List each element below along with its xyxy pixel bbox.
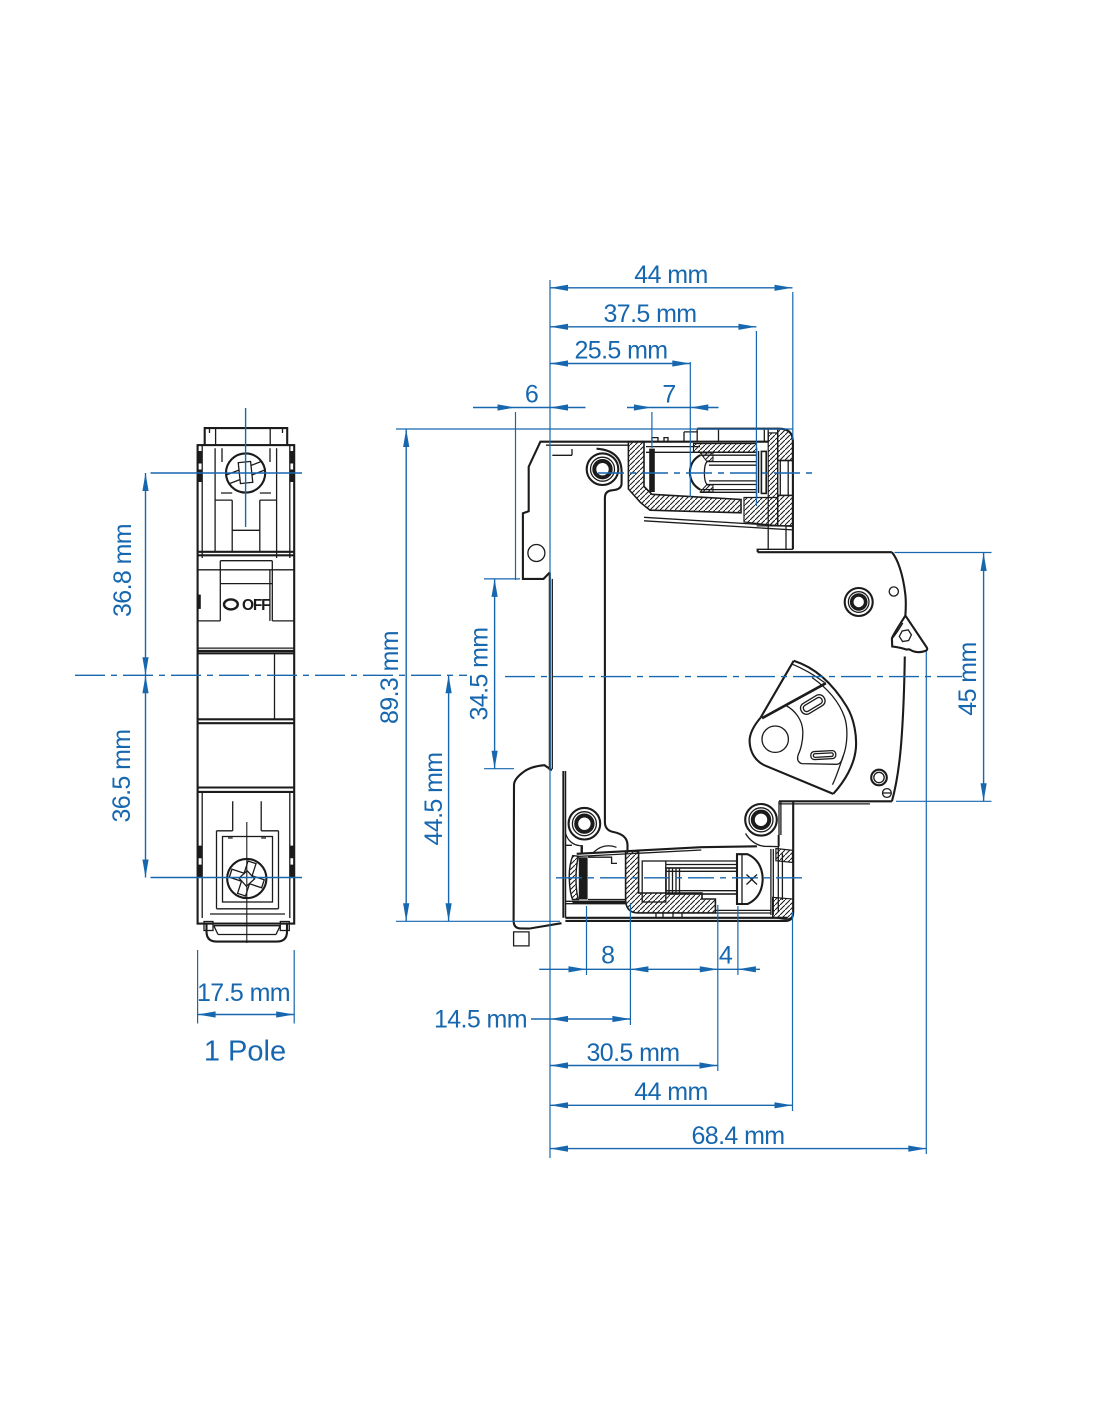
svg-text:37.5 mm: 37.5 mm (603, 300, 696, 328)
svg-text:36.5 mm: 36.5 mm (108, 729, 136, 822)
svg-text:44 mm: 44 mm (634, 1078, 707, 1106)
svg-text:OFF: OFF (242, 597, 270, 614)
svg-text:44 mm: 44 mm (634, 261, 707, 289)
svg-text:34.5 mm: 34.5 mm (466, 627, 494, 720)
svg-text:1 Pole: 1 Pole (204, 1036, 286, 1068)
svg-text:17.5 mm: 17.5 mm (197, 979, 290, 1007)
svg-text:44.5 mm: 44.5 mm (420, 752, 448, 845)
svg-text:36.8 mm: 36.8 mm (109, 524, 137, 617)
svg-text:8: 8 (601, 942, 614, 970)
svg-text:89.3 mm: 89.3 mm (376, 631, 404, 724)
svg-text:25.5 mm: 25.5 mm (574, 337, 667, 365)
svg-text:7: 7 (662, 381, 675, 409)
svg-text:45 mm: 45 mm (954, 642, 982, 715)
svg-text:6: 6 (525, 381, 538, 409)
svg-text:30.5 mm: 30.5 mm (586, 1039, 679, 1067)
svg-text:4: 4 (719, 942, 733, 970)
svg-text:68.4 mm: 68.4 mm (691, 1122, 784, 1150)
svg-text:14.5 mm: 14.5 mm (434, 1006, 527, 1034)
